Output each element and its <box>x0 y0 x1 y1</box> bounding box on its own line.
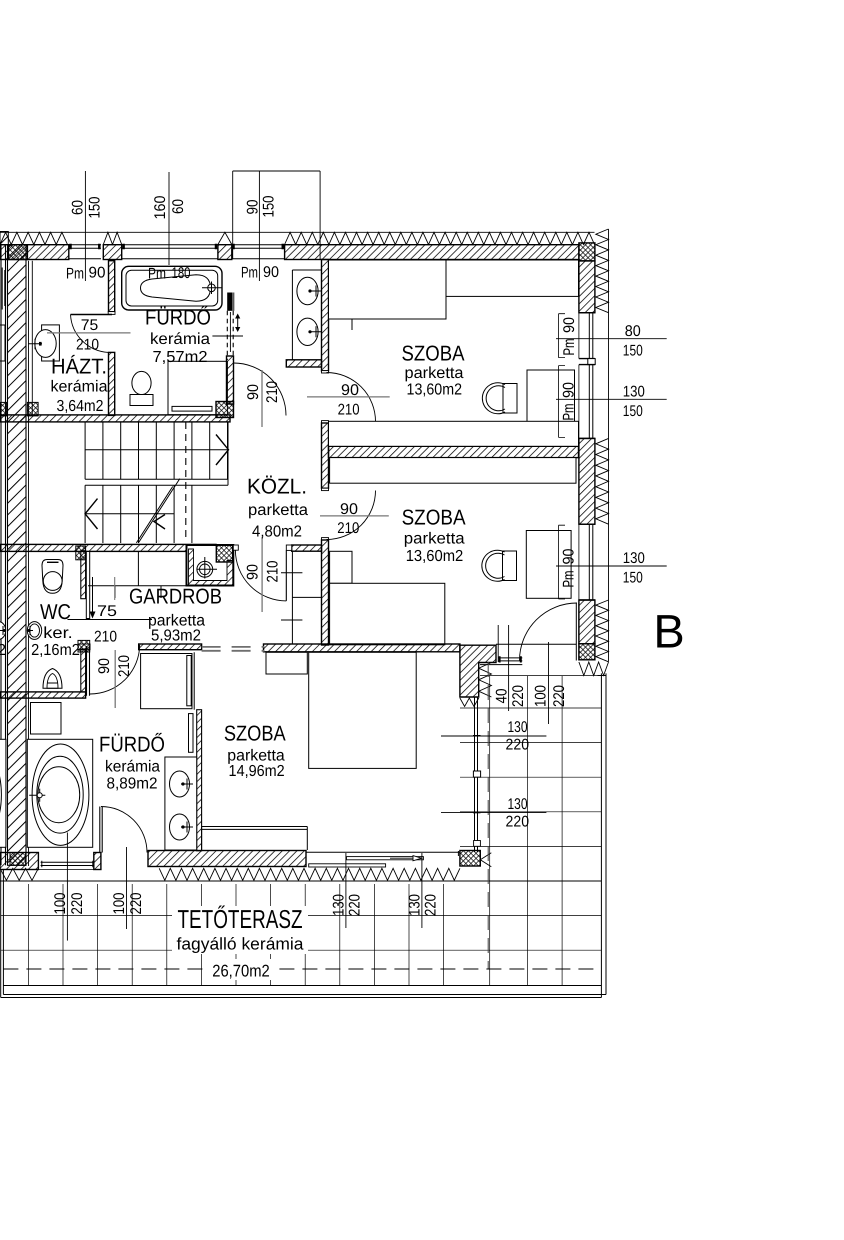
svg-text:SZOBA: SZOBA <box>224 722 286 746</box>
svg-text:90: 90 <box>245 199 262 214</box>
svg-text:Pm: Pm <box>241 265 258 282</box>
svg-text:210: 210 <box>76 337 99 354</box>
svg-text:8,89m2: 8,89m2 <box>107 776 158 793</box>
svg-text:90: 90 <box>561 317 578 333</box>
svg-text:130: 130 <box>623 384 645 401</box>
svg-text:90: 90 <box>560 382 577 398</box>
svg-text:210: 210 <box>94 629 117 646</box>
svg-text:130: 130 <box>623 550 645 567</box>
svg-text:90: 90 <box>340 501 358 518</box>
svg-text:150: 150 <box>86 196 103 218</box>
svg-text:220: 220 <box>506 814 530 831</box>
svg-text:FÜRDŐ: FÜRDŐ <box>145 306 211 330</box>
svg-text:90: 90 <box>341 382 359 399</box>
svg-text:Pm: Pm <box>66 266 84 283</box>
svg-text:60: 60 <box>69 200 86 215</box>
svg-text:130: 130 <box>330 894 347 916</box>
svg-text:220: 220 <box>551 685 568 707</box>
svg-text:150: 150 <box>623 343 643 360</box>
svg-text:2,16m2: 2,16m2 <box>31 642 80 659</box>
svg-text:90: 90 <box>244 564 261 580</box>
svg-text:ker.: ker. <box>43 625 73 642</box>
svg-text:100: 100 <box>532 685 549 707</box>
svg-text:90: 90 <box>245 384 262 400</box>
svg-text:FÜRDŐ: FÜRDŐ <box>99 733 165 757</box>
svg-text:130: 130 <box>406 894 423 916</box>
svg-text:kerámia: kerámia <box>105 759 160 776</box>
svg-text:GARDROB: GARDROB <box>129 585 222 609</box>
svg-text:parketta: parketta <box>405 365 464 382</box>
svg-text:100: 100 <box>111 892 128 914</box>
svg-text:fagyálló kerámia: fagyálló kerámia <box>177 935 305 954</box>
svg-text:SZOBA: SZOBA <box>402 506 467 530</box>
svg-text:Pm: Pm <box>560 404 577 421</box>
svg-text:Pm: Pm <box>560 571 577 588</box>
svg-text:parketta: parketta <box>248 502 308 519</box>
svg-text:Pm: Pm <box>561 339 578 356</box>
svg-text:WC: WC <box>40 600 71 624</box>
svg-text:13,60m2: 13,60m2 <box>406 548 464 565</box>
svg-text:220: 220 <box>422 894 439 916</box>
svg-text:150: 150 <box>261 195 278 217</box>
svg-text:2,16m2: 2,16m2 <box>0 642 6 659</box>
svg-text:150: 150 <box>623 570 643 587</box>
svg-text:220: 220 <box>69 892 86 914</box>
svg-text:160: 160 <box>152 195 169 219</box>
svg-text:90: 90 <box>96 658 113 674</box>
svg-text:90: 90 <box>263 264 279 281</box>
svg-text:80: 80 <box>625 323 641 340</box>
svg-text:TETŐTERASZ: TETŐTERASZ <box>178 904 303 934</box>
svg-text:210: 210 <box>337 520 359 537</box>
svg-text:B: B <box>653 605 684 658</box>
svg-text:parketta: parketta <box>227 748 285 765</box>
svg-text:220: 220 <box>128 892 145 914</box>
svg-text:kerámia: kerámia <box>150 331 210 348</box>
svg-text:130: 130 <box>508 719 528 736</box>
svg-text:KÖZL.: KÖZL. <box>247 475 307 499</box>
svg-text:220: 220 <box>510 685 527 707</box>
svg-text:Pm: Pm <box>148 266 166 283</box>
svg-text:4,80m2: 4,80m2 <box>252 524 302 541</box>
svg-text:210: 210 <box>264 381 281 403</box>
svg-text:13,60m2: 13,60m2 <box>407 382 463 399</box>
svg-text:90: 90 <box>560 548 577 564</box>
svg-text:SZOBA: SZOBA <box>402 342 466 366</box>
svg-text:180: 180 <box>172 265 191 282</box>
svg-text:60: 60 <box>170 199 187 214</box>
svg-text:5,93m2: 5,93m2 <box>151 628 201 645</box>
svg-text:150: 150 <box>623 403 643 420</box>
svg-text:3,64m2: 3,64m2 <box>57 398 104 415</box>
svg-text:210: 210 <box>338 402 360 419</box>
svg-text:14,96m2: 14,96m2 <box>229 763 285 780</box>
svg-text:210: 210 <box>264 560 281 582</box>
svg-text:130: 130 <box>508 796 528 813</box>
svg-text:HÁZT.: HÁZT. <box>51 355 107 379</box>
svg-text:90: 90 <box>89 265 106 282</box>
svg-text:220: 220 <box>346 894 363 916</box>
svg-text:26,70m2: 26,70m2 <box>212 962 270 981</box>
svg-text:75: 75 <box>97 603 117 620</box>
svg-text:220: 220 <box>506 737 530 754</box>
svg-text:7,57m2: 7,57m2 <box>153 349 208 366</box>
svg-text:40: 40 <box>493 688 510 703</box>
svg-text:210: 210 <box>116 655 133 677</box>
svg-text:75: 75 <box>81 317 99 334</box>
svg-text:parketta: parketta <box>404 531 465 548</box>
svg-text:kerámia: kerámia <box>51 379 108 396</box>
svg-text:100: 100 <box>52 892 69 914</box>
